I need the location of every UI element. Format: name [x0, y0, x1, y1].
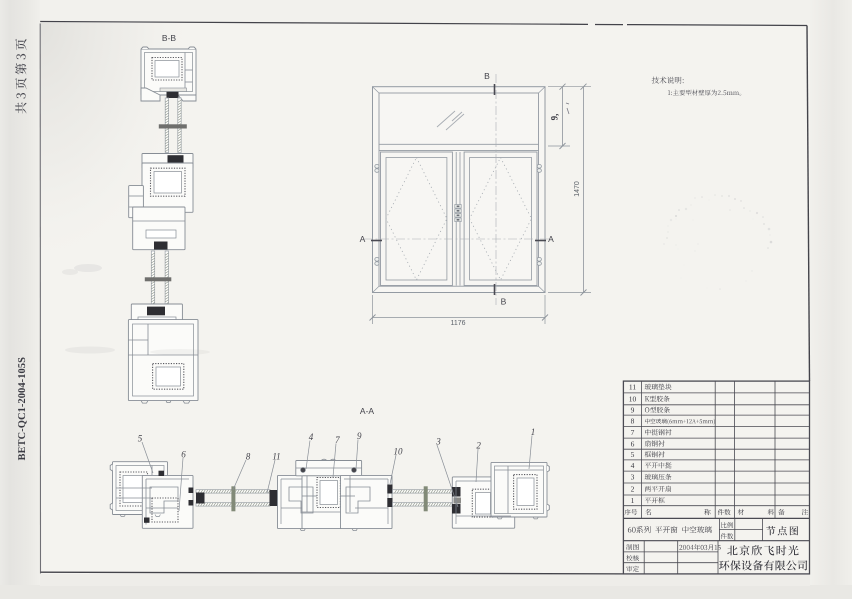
svg-text:B: B: [501, 297, 507, 307]
svg-text:7: 7: [631, 428, 635, 437]
svg-text:6: 6: [181, 449, 186, 459]
svg-text:7: 7: [335, 435, 340, 445]
svg-text:1470: 1470: [574, 181, 581, 197]
svg-text:9: 9: [631, 406, 635, 415]
svg-text:4: 4: [631, 461, 635, 470]
svg-text:1: 1: [531, 427, 536, 437]
svg-text:8: 8: [246, 451, 251, 461]
svg-text:3: 3: [631, 473, 635, 482]
svg-text:B: B: [484, 71, 490, 81]
svg-text:8: 8: [631, 416, 635, 425]
svg-text:11: 11: [629, 383, 636, 392]
svg-text:2: 2: [476, 441, 481, 451]
svg-text:1: 1: [631, 496, 635, 505]
svg-text:A: A: [360, 234, 366, 244]
svg-text:9: 9: [357, 431, 362, 441]
svg-text:10: 10: [394, 447, 404, 457]
svg-text:10: 10: [629, 394, 637, 403]
svg-text:1176: 1176: [450, 320, 465, 327]
svg-text:3: 3: [435, 436, 441, 446]
svg-text:4: 4: [309, 432, 314, 442]
svg-text:11: 11: [272, 451, 280, 461]
svg-text:9,: 9,: [550, 114, 560, 121]
svg-text:6: 6: [631, 439, 635, 448]
svg-text:2: 2: [631, 485, 635, 494]
svg-text:A: A: [548, 234, 554, 244]
svg-text:B-B: B-B: [162, 33, 177, 43]
svg-text:A-A: A-A: [360, 406, 375, 416]
svg-text:5: 5: [631, 450, 635, 459]
